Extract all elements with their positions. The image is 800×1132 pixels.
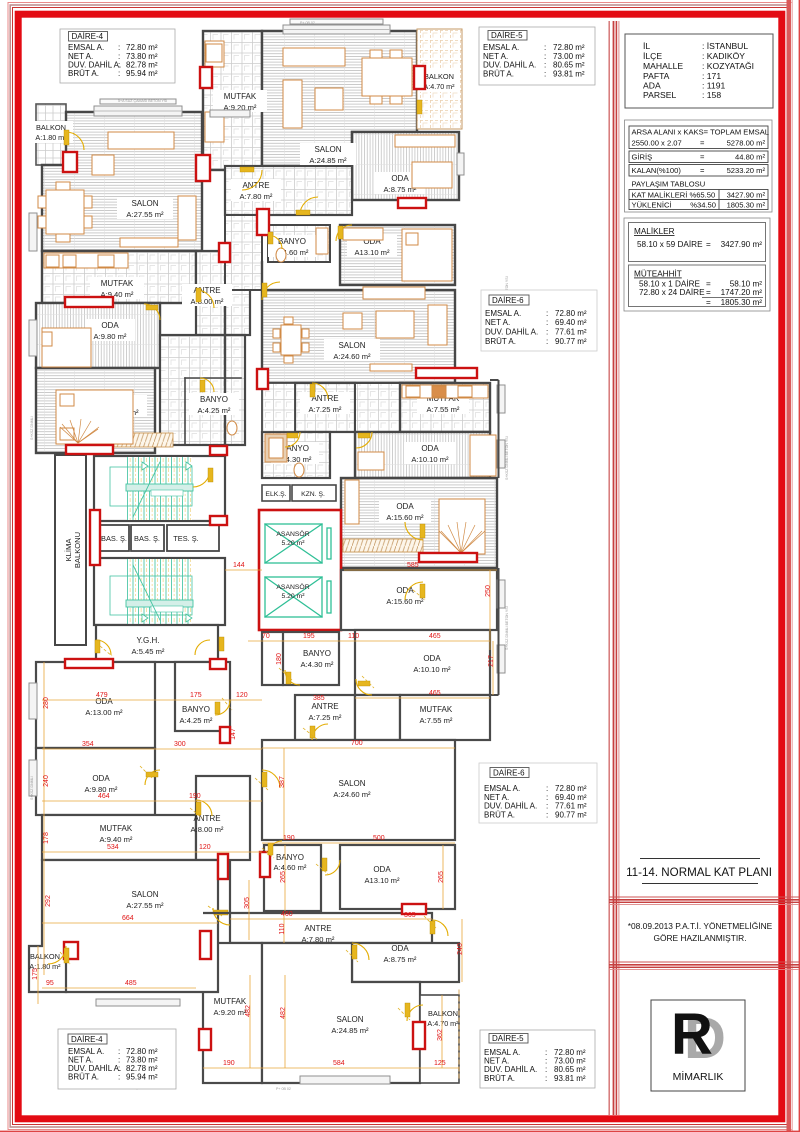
svg-text:95.94 m²: 95.94 m² (126, 1073, 158, 1082)
svg-text:DUV. DAHİL A.: DUV. DAHİL A. (484, 1065, 537, 1074)
svg-text:=: = (706, 288, 711, 297)
svg-text:72.80 x 24 DAİRE: 72.80 x 24 DAİRE (639, 287, 705, 297)
svg-text:365: 365 (404, 912, 416, 919)
svg-text:77.61 m²: 77.61 m² (555, 802, 587, 811)
svg-text:BANYO: BANYO (182, 705, 210, 714)
svg-text:A:7.80 m²: A:7.80 m² (302, 935, 335, 944)
svg-text:MUTFAK: MUTFAK (224, 92, 257, 101)
svg-text:DAİRE-6: DAİRE-6 (492, 296, 524, 305)
svg-text:80.65 m²: 80.65 m² (553, 61, 585, 70)
svg-text:A:4.70 m²: A:4.70 m² (423, 82, 455, 91)
svg-text:BRÜT A.: BRÜT A. (485, 337, 516, 346)
svg-text:69.40 m²: 69.40 m² (555, 318, 587, 327)
svg-text:178: 178 (43, 832, 50, 844)
svg-text::: : (118, 60, 120, 69)
svg-text:90.77 m²: 90.77 m² (555, 810, 587, 819)
svg-text:A:7.55 m²: A:7.55 m² (420, 716, 453, 725)
svg-text:A:7.55 m²: A:7.55 m² (427, 405, 460, 414)
svg-text:700: 700 (351, 740, 363, 747)
svg-text:BANYO: BANYO (276, 853, 304, 862)
svg-text:3427.90 m²: 3427.90 m² (721, 240, 763, 249)
svg-text::: : (118, 43, 120, 52)
svg-text:MUTFAK: MUTFAK (214, 997, 247, 1006)
svg-text:NET A.: NET A. (483, 52, 508, 61)
svg-text:A:4.25 m²: A:4.25 m² (198, 406, 231, 415)
svg-text:ANTRE: ANTRE (311, 702, 338, 711)
svg-text:82.78 m²: 82.78 m² (126, 60, 158, 69)
svg-text:300: 300 (174, 741, 186, 748)
svg-text:ODA: ODA (391, 944, 409, 953)
svg-text:ODA: ODA (373, 865, 391, 874)
svg-text:SALON: SALON (131, 199, 158, 208)
svg-text:PAYLAŞIM TABLOSU: PAYLAŞIM TABLOSU (632, 180, 706, 189)
svg-text:BRÜT A.: BRÜT A. (484, 810, 515, 819)
svg-text:S+KSZ DNMLI: S+KSZ DNMLI (30, 776, 34, 800)
svg-text:EMSAL A.: EMSAL A. (68, 43, 104, 52)
svg-text:MİMARLIK: MİMARLIK (673, 1070, 724, 1083)
svg-text:GÖRE HAZILANMIŞTIR.: GÖRE HAZILANMIŞTIR. (653, 933, 746, 943)
svg-text:BRÜT A.: BRÜT A. (68, 69, 99, 78)
svg-text:240: 240 (43, 775, 50, 787)
svg-text:DAİRE-4: DAİRE-4 (72, 32, 104, 41)
svg-text:195: 195 (303, 633, 315, 640)
svg-text::: : (544, 43, 546, 52)
svg-text:S+KSZ DNMLI BETON YSI: S+KSZ DNMLI BETON YSI (505, 436, 509, 480)
svg-text:A:24.60 m²: A:24.60 m² (333, 352, 371, 361)
svg-text:PAFTA: PAFTA (643, 71, 670, 81)
svg-text:İL: İL (643, 41, 650, 51)
svg-text:5278.00 m²: 5278.00 m² (727, 139, 766, 148)
svg-text:SALON: SALON (338, 779, 365, 788)
svg-text:ASANSÖR: ASANSÖR (276, 583, 309, 591)
svg-text:110: 110 (348, 633, 359, 640)
svg-text:MUTFAK: MUTFAK (101, 279, 134, 288)
svg-text:664: 664 (122, 915, 134, 922)
svg-text:44.80 m²: 44.80 m² (735, 153, 765, 162)
svg-text:1805.30 m²: 1805.30 m² (721, 298, 763, 307)
svg-text:DAİRE-5: DAİRE-5 (491, 31, 523, 40)
svg-text::: : (545, 1074, 547, 1083)
svg-text:BANYO: BANYO (303, 649, 331, 658)
svg-text:BAS. Ş.: BAS. Ş. (101, 534, 127, 543)
svg-text:SALON: SALON (338, 341, 365, 350)
svg-text:465: 465 (429, 690, 441, 697)
svg-text:280: 280 (43, 697, 50, 709)
svg-text:ARSA ALANI x KAKS= TOPLAM EMSA: ARSA ALANI x KAKS= TOPLAM EMSAL (632, 128, 770, 137)
svg-text:BANYO: BANYO (200, 395, 228, 404)
svg-text:A13.10 m²: A13.10 m² (364, 876, 400, 885)
svg-text:SALON: SALON (336, 1015, 363, 1024)
svg-text:ANTRE: ANTRE (242, 181, 269, 190)
svg-text:BALKON: BALKON (36, 123, 66, 132)
svg-text:73.00 m²: 73.00 m² (553, 52, 585, 61)
svg-text:147: 147 (230, 728, 237, 740)
svg-text:ELK.Ş.: ELK.Ş. (265, 491, 286, 498)
svg-text:ODA: ODA (421, 444, 439, 453)
svg-text:250: 250 (485, 585, 492, 597)
svg-text:A:10.10 m²: A:10.10 m² (411, 455, 449, 464)
svg-text:A:13.00 m²: A:13.00 m² (85, 708, 123, 717)
svg-text:265: 265 (438, 871, 445, 883)
svg-text:A:10.10 m²: A:10.10 m² (413, 665, 451, 674)
svg-text:ANTRE: ANTRE (193, 814, 220, 823)
svg-text:190: 190 (223, 1060, 235, 1067)
svg-text:=: = (706, 298, 711, 307)
svg-text:ODA: ODA (396, 502, 414, 511)
svg-text:585: 585 (407, 562, 419, 569)
svg-text:292: 292 (45, 895, 52, 907)
svg-text:362: 362 (437, 1029, 444, 1041)
svg-text:265: 265 (280, 871, 287, 883)
svg-text:BANYO: BANYO (278, 237, 306, 246)
svg-text:58.10 x 59 DAİRE: 58.10 x 59 DAİRE (637, 239, 703, 249)
svg-text:KZN. Ş.: KZN. Ş. (301, 491, 325, 498)
svg-text::: : (546, 328, 548, 337)
svg-text:=: = (700, 139, 705, 148)
svg-text:A:8.00 m²: A:8.00 m² (191, 825, 224, 834)
svg-text:69.40 m²: 69.40 m² (555, 793, 587, 802)
svg-text:3427.90 m²: 3427.90 m² (727, 191, 766, 200)
svg-text:P+ 0B 02: P+ 0B 02 (276, 1087, 291, 1091)
svg-text:305: 305 (244, 897, 251, 909)
svg-text:KAT MALİKLERİ %65.50: KAT MALİKLERİ %65.50 (632, 191, 716, 200)
svg-text:=: = (706, 240, 711, 249)
svg-text:ODA: ODA (423, 654, 441, 663)
svg-text:ANTRE: ANTRE (311, 394, 338, 403)
svg-text:217: 217 (488, 655, 495, 667)
svg-text:A:27.55 m²: A:27.55 m² (126, 210, 164, 219)
svg-text:A:5.45 m²: A:5.45 m² (132, 647, 165, 656)
svg-text:DUV. DAHİL A.: DUV. DAHİL A. (485, 328, 538, 337)
svg-text:Y.G.H.: Y.G.H. (137, 636, 160, 645)
svg-text:1747.20 m²: 1747.20 m² (721, 288, 763, 297)
svg-text:125: 125 (434, 1060, 446, 1067)
svg-text:=: = (700, 153, 705, 162)
svg-text:11-14. NORMAL KAT PLANI: 11-14. NORMAL KAT PLANI (626, 866, 772, 879)
svg-text:95: 95 (46, 980, 54, 987)
svg-text:A:1.80 m²: A:1.80 m² (35, 133, 67, 142)
svg-text:80.65 m²: 80.65 m² (554, 1065, 586, 1074)
svg-text:A:9.80 m²: A:9.80 m² (94, 332, 127, 341)
svg-text:90.77 m²: 90.77 m² (555, 337, 587, 346)
svg-text:S+KSZ DNMLI BETON YSI: S+KSZ DNMLI BETON YSI (505, 606, 509, 650)
svg-text:72.80 m²: 72.80 m² (126, 43, 158, 52)
svg-text::: : (544, 69, 546, 78)
svg-text:93.81 m²: 93.81 m² (553, 69, 585, 78)
svg-text:MAHALLE: MAHALLE (643, 61, 683, 71)
svg-text:A:4.70 m²: A:4.70 m² (427, 1019, 459, 1028)
svg-text:144: 144 (233, 562, 245, 569)
svg-text:385: 385 (313, 695, 325, 702)
svg-text::: : (544, 52, 546, 61)
svg-text:%34.50: %34.50 (690, 201, 716, 210)
svg-text:SALON: SALON (131, 890, 158, 899)
svg-text:GİRİŞ: GİRİŞ (632, 153, 653, 162)
svg-text:465: 465 (429, 633, 441, 640)
svg-text:: KADIKÖY: : KADIKÖY (702, 51, 745, 61)
svg-text:A:7.80 m²: A:7.80 m² (240, 192, 273, 201)
svg-text:175: 175 (190, 692, 202, 699)
svg-text:=: = (700, 166, 705, 175)
svg-text:MUTFAK: MUTFAK (100, 824, 133, 833)
svg-text:110: 110 (279, 923, 286, 934)
svg-text:584: 584 (333, 1060, 345, 1067)
svg-text:BRÜT A.: BRÜT A. (484, 1074, 515, 1083)
svg-text:ADA: ADA (643, 81, 661, 91)
svg-text:TES. Ş.: TES. Ş. (173, 534, 198, 543)
svg-text:2550.00 x 2.07: 2550.00 x 2.07 (632, 139, 682, 148)
svg-text:BRÜT A.: BRÜT A. (68, 1073, 99, 1082)
svg-text:EMSAL A.: EMSAL A. (485, 309, 521, 318)
svg-text:BALKON: BALKON (428, 1009, 458, 1018)
svg-text::: : (546, 810, 548, 819)
svg-text:S+KSZ DNMLI: S+KSZ DNMLI (30, 416, 34, 440)
svg-text:460: 460 (281, 911, 293, 918)
svg-text:5+A SÜZ ÇAMASI BETON YSI: 5+A SÜZ ÇAMASI BETON YSI (118, 99, 167, 103)
svg-text:387: 387 (279, 776, 286, 788)
svg-text:72.80 m²: 72.80 m² (555, 784, 587, 793)
svg-text:482: 482 (245, 1005, 252, 1017)
svg-text:: 158: : 158 (702, 90, 721, 100)
svg-text:175: 175 (32, 968, 39, 980)
svg-text:EMSAL A.: EMSAL A. (484, 784, 520, 793)
svg-text:95.94 m²: 95.94 m² (126, 69, 158, 78)
svg-text:KLİMA: KLİMA (64, 538, 73, 562)
svg-text:BRÜT A.: BRÜT A. (483, 69, 514, 78)
svg-text:A:7.25 m²: A:7.25 m² (309, 405, 342, 414)
svg-text:A:4.30 m²: A:4.30 m² (301, 660, 334, 669)
svg-text:72.80 m²: 72.80 m² (553, 43, 585, 52)
svg-text:120: 120 (236, 692, 248, 699)
svg-text:500: 500 (373, 835, 385, 842)
svg-text:DAİRE-5: DAİRE-5 (492, 1034, 524, 1043)
svg-text:A:4.25 m²: A:4.25 m² (180, 716, 213, 725)
svg-text:ODA: ODA (391, 174, 409, 183)
svg-text:MUTFAK: MUTFAK (420, 705, 453, 714)
svg-text:R: R (671, 1002, 713, 1067)
svg-text:77.61 m²: 77.61 m² (555, 328, 587, 337)
svg-text:ANTRE: ANTRE (304, 924, 331, 933)
svg-text:SALON: SALON (314, 145, 341, 154)
svg-text:1805.30 m²: 1805.30 m² (727, 201, 766, 210)
svg-text:A:9.20 m²: A:9.20 m² (214, 1008, 247, 1017)
svg-text:ODA: ODA (101, 321, 119, 330)
svg-text:464: 464 (98, 793, 110, 800)
svg-text:72.80 m²: 72.80 m² (555, 309, 587, 318)
svg-text::: : (546, 337, 548, 346)
svg-text:A:7.25 m²: A:7.25 m² (309, 713, 342, 722)
svg-text:MALİKLER: MALİKLER (634, 226, 675, 236)
svg-text:BALKONU: BALKONU (73, 532, 82, 568)
svg-text:70: 70 (262, 633, 270, 640)
svg-text:A13.10 m²: A13.10 m² (354, 248, 390, 257)
svg-text:: İSTANBUL: : İSTANBUL (702, 41, 748, 51)
svg-text:A:24.85 m²: A:24.85 m² (331, 1026, 369, 1035)
svg-text:MÜTEAHHİT: MÜTEAHHİT (634, 269, 682, 279)
svg-text::: : (545, 1065, 547, 1074)
svg-text:DUV. DAHİL A.: DUV. DAHİL A. (484, 802, 537, 811)
svg-text:A:24.60 m²: A:24.60 m² (333, 790, 371, 799)
svg-text::: : (118, 1073, 120, 1082)
svg-text:BAS. Ş.: BAS. Ş. (134, 534, 160, 543)
svg-text:482: 482 (280, 1007, 287, 1019)
svg-text:534: 534 (107, 844, 119, 851)
svg-text:120: 120 (199, 844, 211, 851)
svg-text:A:8.00 m²: A:8.00 m² (191, 297, 224, 306)
svg-text:EMSAL A.: EMSAL A. (483, 43, 519, 52)
svg-text:BALKON: BALKON (30, 952, 60, 961)
svg-text:479: 479 (96, 692, 108, 699)
svg-text:KALAN(%100): KALAN(%100) (632, 166, 682, 175)
svg-text::: : (118, 69, 120, 78)
svg-text:A:4.60 m²: A:4.60 m² (274, 863, 307, 872)
svg-text:NET A.: NET A. (484, 793, 509, 802)
svg-text:: KOZYATAĞI: : KOZYATAĞI (702, 61, 754, 71)
svg-text:PARSEL: PARSEL (643, 90, 676, 100)
svg-text:NET A.: NET A. (485, 318, 510, 327)
svg-text:: 171: : 171 (702, 71, 721, 81)
svg-text:354: 354 (82, 741, 94, 748)
svg-text:5233.20 m²: 5233.20 m² (727, 166, 766, 175)
svg-text:5.20 m²: 5.20 m² (281, 540, 305, 547)
svg-text:P+ 0B 02: P+ 0B 02 (300, 21, 315, 25)
svg-text:A:15.60 m²: A:15.60 m² (386, 513, 424, 522)
svg-text::: : (546, 318, 548, 327)
svg-text:5.20 m²: 5.20 m² (281, 593, 305, 600)
svg-text:ASANSÖR: ASANSÖR (276, 530, 309, 538)
svg-text:ODA: ODA (92, 774, 110, 783)
svg-text:A:27.55 m²: A:27.55 m² (126, 901, 164, 910)
svg-text:DUV. DAHİL A.: DUV. DAHİL A. (68, 60, 121, 69)
svg-text::: : (546, 802, 548, 811)
svg-text:190: 190 (283, 835, 295, 842)
svg-text:DAİRE-6: DAİRE-6 (493, 769, 525, 778)
svg-text:YÜKLENİCİ: YÜKLENİCİ (632, 201, 672, 210)
svg-text:DUV. DAHİL A.: DUV. DAHİL A. (483, 61, 536, 70)
svg-text:: 1191: : 1191 (702, 81, 725, 91)
svg-text:İLÇE: İLÇE (643, 51, 662, 61)
svg-text:A:24.85 m²: A:24.85 m² (309, 156, 347, 165)
svg-text::: : (546, 784, 548, 793)
svg-text:DAİRE-4: DAİRE-4 (71, 1035, 103, 1044)
svg-text:240: 240 (457, 943, 464, 955)
svg-text::: : (546, 309, 548, 318)
svg-text:A:8.75 m²: A:8.75 m² (384, 955, 417, 964)
svg-text:A:9.40 m²: A:9.40 m² (100, 835, 133, 844)
svg-text:190: 190 (189, 793, 201, 800)
svg-text:93.81 m²: 93.81 m² (554, 1074, 586, 1083)
svg-text:485: 485 (125, 980, 137, 987)
svg-text::: : (544, 61, 546, 70)
svg-text:*08.09.2013 P.A.T.İ. YÖNETMELİ: *08.09.2013 P.A.T.İ. YÖNETMELİĞİNE (628, 921, 773, 931)
svg-text:ODA: ODA (396, 586, 414, 595)
svg-text:58.10 x 1 DAİRE: 58.10 x 1 DAİRE (639, 279, 701, 289)
svg-text:BALKON: BALKON (424, 72, 454, 81)
svg-text:180: 180 (276, 653, 283, 665)
svg-text::: : (546, 793, 548, 802)
